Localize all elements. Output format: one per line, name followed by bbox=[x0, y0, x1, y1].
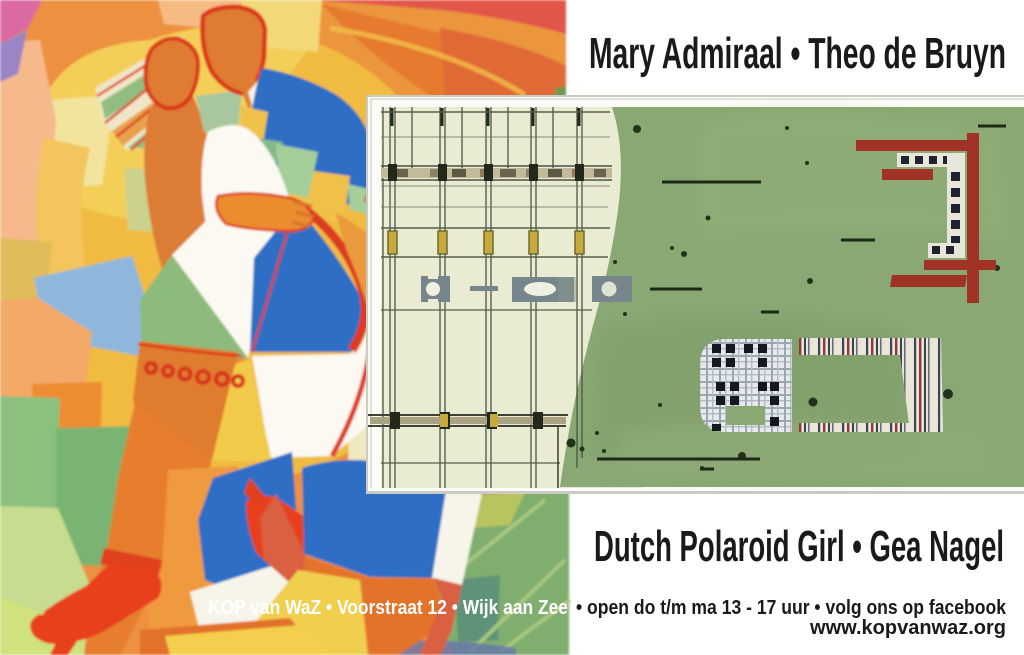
svg-text:www.kopvanwaz.org: www.kopvanwaz.org bbox=[809, 617, 1006, 639]
svg-text:• open do t/m ma 13 - 17 uur •: • open do t/m ma 13 - 17 uur • volg ons … bbox=[576, 597, 1007, 619]
svg-text:Mary Admiraal • Theo de Bruyn: Mary Admiraal • Theo de Bruyn bbox=[589, 29, 1006, 78]
svg-text:KOP van WaZ • Voorstraat 12 •: KOP van WaZ • Voorstraat 12 • Wijk aan Z… bbox=[208, 597, 568, 619]
svg-text:Dutch Polaroid Girl • Gea Nage: Dutch Polaroid Girl • Gea Nagel bbox=[594, 522, 1004, 571]
